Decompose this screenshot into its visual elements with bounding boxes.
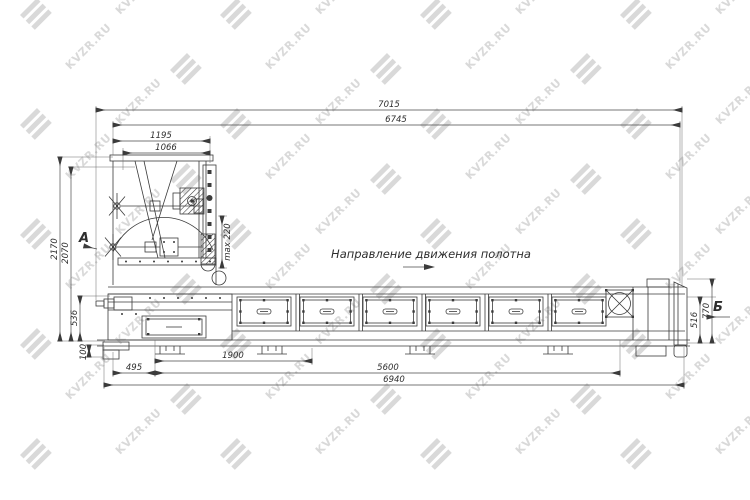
watermark-text: KVZR.RU xyxy=(313,0,364,17)
watermark-text: KVZR.RU xyxy=(313,406,364,457)
watermark-layer: KVZR.RUKVZR.RUKVZR.RUKVZR.RUKVZR.RUKVZR.… xyxy=(20,0,750,470)
watermark-logo-icon xyxy=(620,218,652,250)
watermark-text: KVZR.RU xyxy=(313,296,364,347)
watermark-logo-icon xyxy=(170,383,202,415)
watermark-text: KVZR.RU xyxy=(513,186,564,237)
dim-overall-length: 7015 xyxy=(378,100,400,110)
watermark-text: KVZR.RU xyxy=(663,21,714,72)
watermark-logo-icon xyxy=(570,163,602,195)
watermark-logo-icon xyxy=(570,53,602,85)
watermark-text: KVZR.RU xyxy=(513,296,564,347)
watermark-logo-icon xyxy=(370,53,402,85)
watermark-text: KVZR.RU xyxy=(113,406,164,457)
watermark-text: KVZR.RU xyxy=(463,21,514,72)
watermark-text: KVZR.RU xyxy=(113,186,164,237)
watermark-text: KVZR.RU xyxy=(513,0,564,17)
drawing-sheet: KVZR.RUKVZR.RUKVZR.RUKVZR.RUKVZR.RUKVZR.… xyxy=(0,0,750,500)
watermark-text: KVZR.RU xyxy=(513,406,564,457)
watermark-logo-icon xyxy=(620,0,652,30)
watermark-text: KVZR.RU xyxy=(713,186,750,237)
watermark-text: KVZR.RU xyxy=(463,351,514,402)
watermark-logo-icon xyxy=(20,438,52,470)
dim-belt-height-left: 536 xyxy=(70,309,80,326)
watermark-text: KVZR.RU xyxy=(263,351,314,402)
view-label-a: А xyxy=(78,231,89,246)
watermark-text: KVZR.RU xyxy=(113,0,164,17)
watermark-logo-icon xyxy=(570,383,602,415)
watermark-text: KVZR.RU xyxy=(663,131,714,182)
watermark-text: KVZR.RU xyxy=(263,241,314,292)
watermark-logo-icon xyxy=(370,383,402,415)
watermark-logo-icon xyxy=(20,108,52,140)
dim-leg-offset: 495 xyxy=(126,363,142,373)
belt-direction-note: Направление движения полотна xyxy=(331,247,531,261)
dim-ground-clearance: 100 xyxy=(79,344,89,360)
watermark-text: KVZR.RU xyxy=(663,241,714,292)
watermark-text: KVZR.RU xyxy=(513,76,564,127)
dim-head-height: 2070 xyxy=(61,242,71,264)
watermark-logo-icon xyxy=(170,53,202,85)
dim-frame-base-length: 6940 xyxy=(383,375,405,385)
watermark-logo-icon xyxy=(20,218,52,250)
watermark-text: KVZR.RU xyxy=(313,186,364,237)
watermark-text: KVZR.RU xyxy=(313,76,364,127)
dim-drive-section-length: 1900 xyxy=(222,351,244,361)
technical-drawing: KVZR.RUKVZR.RUKVZR.RUKVZR.RUKVZR.RUKVZR.… xyxy=(0,0,750,500)
watermark-logo-icon xyxy=(20,0,52,30)
watermark-text: KVZR.RU xyxy=(113,76,164,127)
watermark-logo-icon xyxy=(20,328,52,360)
watermark-logo-icon xyxy=(420,0,452,30)
watermark-logo-icon xyxy=(370,163,402,195)
watermark-text: KVZR.RU xyxy=(663,351,714,402)
watermark-text: KVZR.RU xyxy=(113,296,164,347)
watermark-text: KVZR.RU xyxy=(63,21,114,72)
dim-screw-travel: max 220 xyxy=(223,223,233,260)
watermark-logo-icon xyxy=(220,108,252,140)
watermark-logo-icon xyxy=(170,273,202,305)
watermark-logo-icon xyxy=(620,108,652,140)
dim-head-width-inner: 1066 xyxy=(155,143,177,153)
dim-support-span: 5600 xyxy=(377,363,399,373)
watermark-text: KVZR.RU xyxy=(63,131,114,182)
watermark-logo-icon xyxy=(220,438,252,470)
watermark-text: KVZR.RU xyxy=(713,76,750,127)
watermark-text: KVZR.RU xyxy=(263,131,314,182)
dim-belt-height-right: 516 xyxy=(690,311,700,328)
watermark-logo-icon xyxy=(420,218,452,250)
watermark-text: KVZR.RU xyxy=(713,0,750,17)
watermark-logo-icon xyxy=(420,328,452,360)
watermark-logo-icon xyxy=(220,0,252,30)
watermark-text: KVZR.RU xyxy=(713,406,750,457)
view-label-b: Б xyxy=(713,300,723,315)
watermark-logo-icon xyxy=(420,108,452,140)
watermark-logo-icon xyxy=(620,438,652,470)
dim-head-width-outer: 1195 xyxy=(150,131,172,141)
watermark-text: KVZR.RU xyxy=(463,131,514,182)
watermark-text: KVZR.RU xyxy=(263,21,314,72)
dim-overall-height: 2170 xyxy=(50,238,60,260)
belt-direction-arrow-icon xyxy=(403,264,435,270)
dim-frame-length: 6745 xyxy=(385,115,407,125)
watermark-logo-icon xyxy=(420,438,452,470)
